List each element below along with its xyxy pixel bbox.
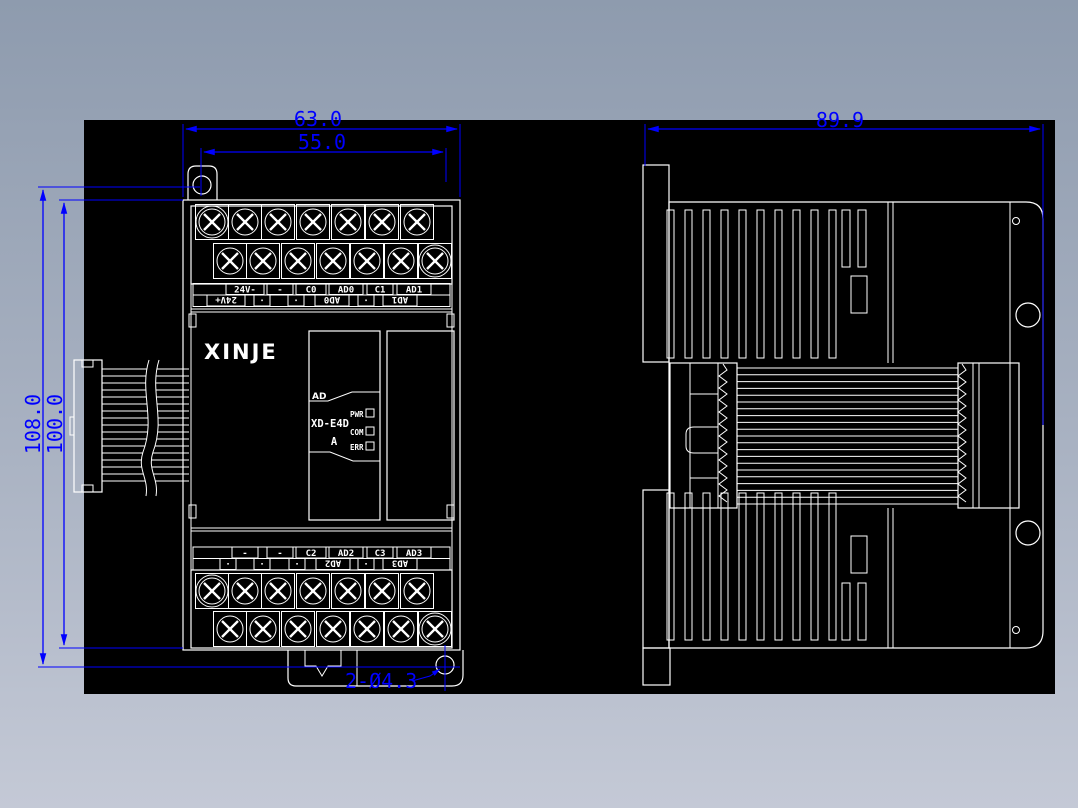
terminal-label: · (294, 558, 299, 568)
terminal-label: · (293, 294, 298, 304)
terminal-label: · (259, 558, 264, 568)
dim-side-depth: 89.9 (816, 108, 864, 132)
terminal-label: AD1 (392, 294, 408, 304)
terminal-label: C0 (306, 286, 317, 296)
terminal-label: 24V- (234, 286, 256, 296)
terminal-label: AD3 (406, 549, 422, 559)
terminal-label: C2 (306, 549, 317, 559)
terminal-label: · (363, 294, 368, 304)
led-com-label: COM (350, 428, 364, 437)
terminal-label: - (277, 286, 282, 296)
dim-front-width: 63.0 (294, 107, 342, 131)
model-suffix-label: A (331, 436, 338, 448)
terminal-label: AD0 (324, 294, 340, 304)
terminal-label: AD1 (406, 286, 422, 296)
terminal-label: AD0 (338, 286, 354, 296)
terminal-label: C3 (375, 549, 386, 559)
terminal-label: · (363, 558, 368, 568)
dim-mounting-holes: 2-Ø4.3 (345, 669, 417, 693)
model-label: XD-E4D (311, 418, 349, 430)
brand-logo: XINJE (204, 340, 278, 364)
terminal-label: · (259, 294, 264, 304)
terminal-label: C1 (375, 286, 386, 296)
channel-tab-label: AD (312, 392, 326, 402)
led-pwr-label: PWR (350, 410, 364, 419)
dim-hole-spacing: 55.0 (298, 130, 346, 154)
terminal-label: 24V+ (215, 294, 237, 304)
terminal-label: AD3 (392, 558, 408, 568)
terminal-label: - (242, 549, 247, 559)
dim-body-height: 100.0 (43, 394, 67, 454)
dim-total-height: 108.0 (21, 394, 45, 454)
terminal-label: · (225, 558, 230, 568)
terminal-label: - (277, 549, 282, 559)
led-err-label: ERR (350, 443, 364, 452)
cad-canvas: 24V--C0AD0C1AD124V+··AD0·AD1--C2AD2C3AD3… (0, 0, 1078, 808)
terminal-label: AD2 (325, 558, 341, 568)
terminal-label: AD2 (338, 549, 354, 559)
